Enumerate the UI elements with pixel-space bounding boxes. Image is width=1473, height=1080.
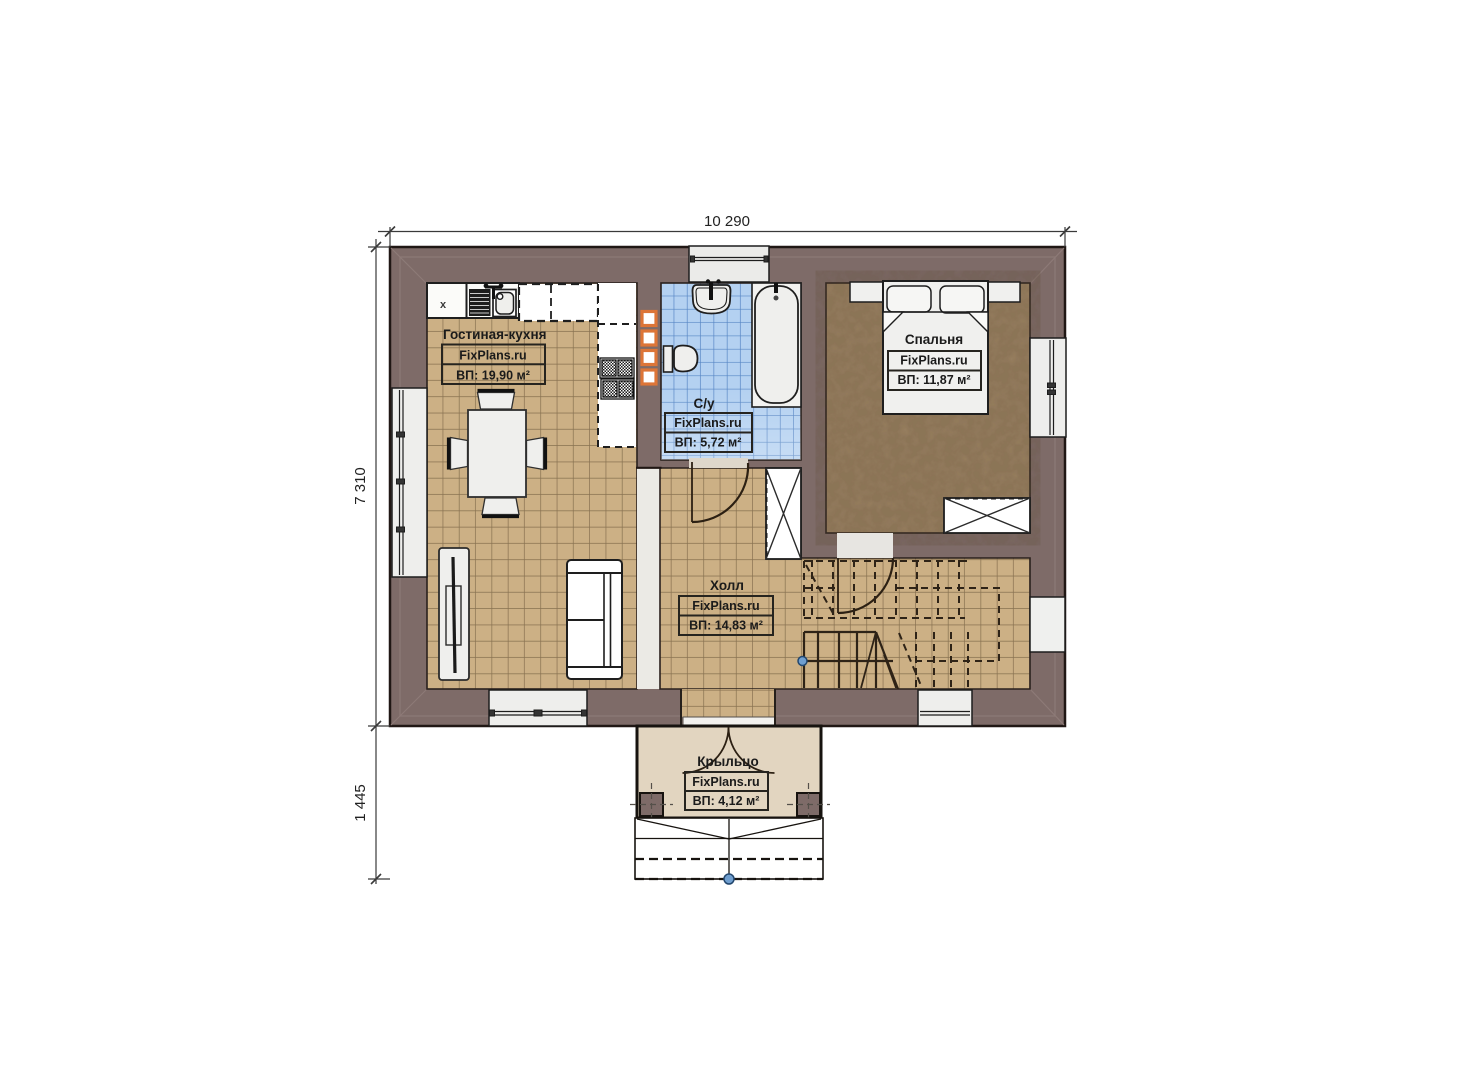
svg-text:FixPlans.ru: FixPlans.ru bbox=[692, 599, 759, 613]
svg-text:ВП: 4,12 м²: ВП: 4,12 м² bbox=[693, 794, 760, 808]
svg-text:FixPlans.ru: FixPlans.ru bbox=[900, 354, 967, 368]
svg-text:FixPlans.ru: FixPlans.ru bbox=[692, 775, 759, 789]
svg-text:ВП: 5,72 м²: ВП: 5,72 м² bbox=[675, 436, 742, 450]
svg-text:FixPlans.ru: FixPlans.ru bbox=[459, 349, 526, 363]
svg-text:ВП: 11,87 м²: ВП: 11,87 м² bbox=[897, 373, 970, 387]
svg-text:7 310: 7 310 bbox=[352, 467, 369, 505]
svg-text:ВП: 19,90 м²: ВП: 19,90 м² bbox=[456, 369, 530, 383]
svg-text:10 290: 10 290 bbox=[704, 213, 750, 230]
svg-text:x: x bbox=[440, 299, 447, 311]
svg-text:С/у: С/у bbox=[693, 396, 715, 411]
svg-text:FixPlans.ru: FixPlans.ru bbox=[674, 416, 741, 430]
svg-text:Гостиная-кухня: Гостиная-кухня bbox=[443, 327, 546, 342]
svg-text:Холл: Холл bbox=[710, 578, 744, 593]
svg-text:ВП: 14,83 м²: ВП: 14,83 м² bbox=[689, 619, 763, 633]
svg-text:1 445: 1 445 bbox=[352, 784, 369, 822]
svg-text:Спальня: Спальня bbox=[905, 332, 963, 347]
svg-text:Крыльцо: Крыльцо bbox=[697, 754, 758, 769]
